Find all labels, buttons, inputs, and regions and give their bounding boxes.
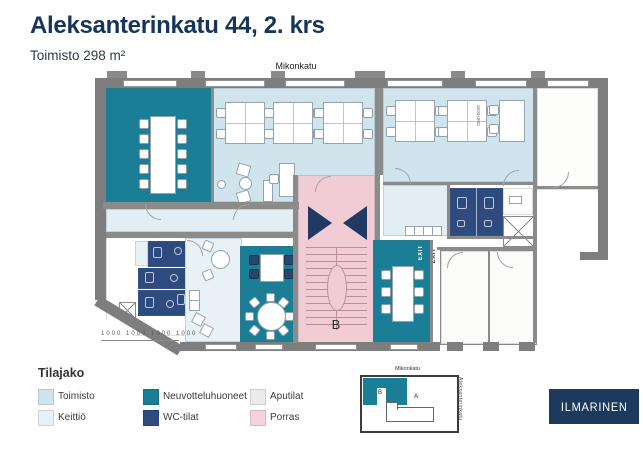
cleaning-nook	[135, 241, 148, 266]
chair	[139, 119, 149, 129]
legend-swatch-toimisto	[38, 389, 54, 405]
facade-pier	[107, 71, 127, 78]
chair	[314, 108, 324, 118]
elevator-icon	[308, 206, 332, 240]
chair	[264, 108, 274, 118]
meeting-table	[260, 254, 284, 282]
chair	[414, 270, 424, 280]
wall-inner	[103, 202, 299, 209]
wall-inner	[533, 88, 537, 343]
wall-inner	[375, 175, 380, 240]
window	[205, 344, 237, 350]
legend-label-wc-tilat: WC-tilat	[163, 412, 199, 423]
facade-pier	[271, 71, 285, 78]
chair	[414, 287, 424, 297]
legend-label-toimisto: Toimisto	[58, 391, 95, 402]
wall-stub	[580, 252, 608, 260]
ilmarinen-logo-text: ILMARINEN	[561, 400, 628, 414]
facade-pier	[191, 71, 205, 78]
chair	[381, 270, 391, 280]
room-meeting-b	[240, 288, 300, 343]
chair	[363, 108, 373, 118]
facade-pier	[531, 71, 545, 78]
aux-divider-wall	[488, 251, 490, 344]
chair	[216, 129, 226, 139]
chair	[386, 106, 396, 116]
legend-label-neuvotteluhuoneet: Neuvotteluhuoneet	[163, 391, 247, 402]
exit-label: EXIT	[418, 245, 424, 260]
chair	[489, 124, 499, 134]
desk-cluster	[395, 100, 435, 142]
pillar	[217, 180, 226, 189]
conference-table	[150, 116, 176, 194]
basin-fixture	[509, 196, 522, 204]
chair	[139, 179, 149, 189]
window	[475, 80, 527, 87]
dimension-labels: 1000 1000 1000 1000	[101, 331, 197, 337]
desk-cluster	[273, 102, 313, 144]
chair	[269, 174, 279, 184]
legend-swatch-keittio	[38, 410, 54, 426]
chair	[249, 255, 259, 265]
wall-inner	[106, 232, 298, 238]
minimap-label-a: A	[414, 393, 418, 400]
chair	[414, 304, 424, 314]
stairwell-label: B	[326, 317, 346, 332]
toilet-fixture	[145, 272, 154, 283]
ilmarinen-logo: ILMARINEN	[549, 389, 639, 424]
corridor-right	[383, 185, 450, 236]
wall-inner	[293, 175, 298, 343]
meeting-table	[392, 266, 414, 322]
wall-stub	[483, 342, 499, 351]
page-title: Aleksanterinkatu 44, 2. krs	[30, 12, 325, 40]
minimap-building-step	[386, 402, 398, 410]
chair	[139, 134, 149, 144]
floor-plan: 1600x800	[85, 76, 612, 354]
stair-void	[327, 265, 347, 311]
minimap-label-b: B	[378, 390, 382, 396]
toilet-fixture	[153, 247, 162, 258]
toilet-fixture	[177, 294, 185, 305]
basin-fixture	[166, 300, 174, 308]
window	[547, 80, 589, 87]
chair	[249, 269, 259, 279]
facade-pier	[451, 71, 465, 78]
basin-fixture	[170, 274, 178, 282]
kitchen-counter	[189, 300, 200, 311]
armchair	[236, 162, 252, 177]
room-washroom	[503, 188, 533, 215]
wall-inner	[375, 88, 383, 175]
window	[387, 80, 443, 87]
room-meeting-large	[103, 88, 213, 202]
wall-stub	[519, 342, 535, 351]
room-wc-3	[138, 290, 188, 316]
room-meeting-a	[240, 246, 300, 288]
wall-left	[95, 78, 106, 300]
chair	[139, 149, 149, 159]
chair	[177, 119, 187, 129]
chair	[201, 239, 214, 252]
chair	[489, 105, 499, 115]
wall-stub	[447, 342, 463, 351]
chair	[381, 304, 391, 314]
chair	[266, 293, 275, 302]
minimap: B A	[360, 375, 459, 433]
shaft-box	[503, 216, 534, 247]
minimap-street-right: Aleksanterinkatu	[457, 377, 463, 429]
page-subtitle: Toimisto 298 m²	[30, 48, 125, 63]
cafe-table	[211, 250, 230, 269]
window	[255, 344, 283, 350]
coffee-table	[239, 177, 252, 190]
window	[390, 344, 418, 350]
legend-label-keittio: Keittiö	[58, 412, 86, 423]
chair	[139, 164, 149, 174]
flyer-page: Aleksanterinkatu 44, 2. krs Toimisto 298…	[0, 0, 643, 449]
elevator-icon	[343, 206, 367, 240]
chair	[314, 129, 324, 139]
corridor-left	[106, 209, 298, 232]
chair	[177, 179, 187, 189]
wall-right	[598, 78, 608, 258]
chair	[264, 129, 274, 139]
wall-inner	[430, 240, 433, 343]
basin-fixture	[174, 247, 182, 255]
wc-divider	[476, 188, 477, 236]
minimap-street-top: Mikonkatu	[360, 366, 455, 372]
chair	[201, 268, 214, 281]
chair	[438, 106, 448, 116]
toilet-fixture	[145, 297, 154, 308]
legend-label-porras: Porras	[270, 412, 299, 423]
toilet-fixture	[484, 197, 494, 209]
street-label-top: Mikonkatu	[250, 61, 342, 71]
chair	[438, 127, 448, 137]
room-wc-2	[138, 268, 188, 289]
legend-label-aputilat: Aputilat	[270, 391, 303, 402]
desk-cluster	[323, 102, 363, 144]
wall-inner	[447, 185, 450, 239]
desk-cluster	[447, 100, 487, 142]
chair	[216, 108, 226, 118]
chair	[386, 127, 396, 137]
room-office-right: 1600x800	[383, 88, 535, 182]
legend-swatch-wc-tilat	[143, 410, 159, 426]
desk-size-label: 1600x800	[476, 105, 481, 126]
legend-swatch-porras	[250, 410, 266, 426]
window	[315, 344, 357, 350]
chair	[363, 129, 373, 139]
room-wc-1	[148, 241, 188, 267]
wall-inner	[537, 186, 598, 189]
chair	[177, 134, 187, 144]
legend-swatch-neuvotteluhuoneet	[143, 389, 159, 405]
facade-pier	[355, 71, 385, 78]
basin-fixture	[457, 220, 465, 227]
chair	[248, 324, 261, 337]
wall-inner	[211, 88, 214, 202]
chair	[177, 164, 187, 174]
stairwell: B	[298, 175, 375, 343]
kitchenette-counter	[432, 226, 442, 236]
desk-cluster	[225, 102, 265, 144]
window	[205, 80, 265, 87]
chair	[177, 149, 187, 159]
chair	[381, 287, 391, 297]
room-wc-right	[450, 188, 503, 236]
desk-pair	[499, 100, 525, 142]
toilet-fixture	[457, 197, 467, 209]
legend-title: Tilajako	[38, 366, 84, 380]
window	[123, 80, 177, 87]
chair	[245, 312, 254, 321]
legend-swatch-aputilat	[250, 389, 266, 405]
basin-fixture	[484, 220, 492, 227]
wall-inner	[437, 247, 535, 250]
window	[285, 80, 345, 87]
wall-inner	[447, 236, 535, 239]
chair	[266, 331, 275, 340]
dimension-line	[101, 340, 179, 341]
